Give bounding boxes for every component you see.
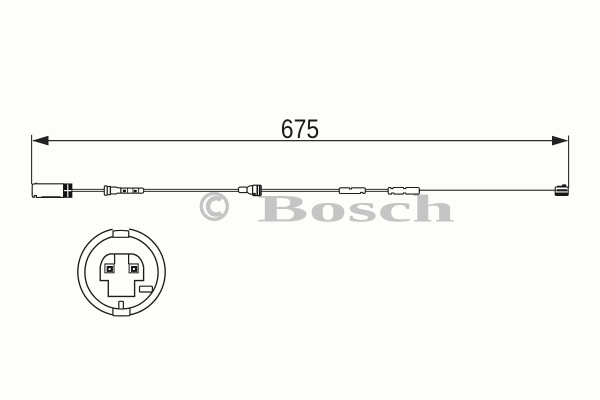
svg-text:675: 675 bbox=[281, 115, 319, 144]
